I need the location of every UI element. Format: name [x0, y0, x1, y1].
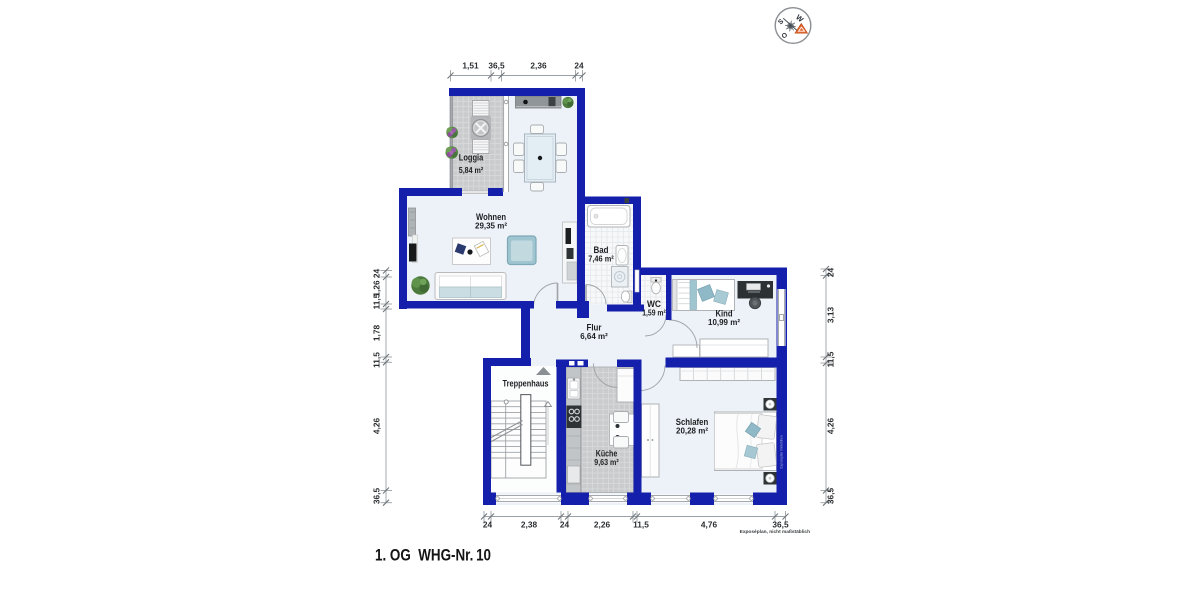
svg-text:5,84 m²: 5,84 m²	[459, 165, 484, 175]
svg-text:11,5: 11,5	[826, 351, 836, 367]
svg-text:1,51: 1,51	[462, 61, 479, 71]
svg-text:20,28 m²: 20,28 m²	[676, 426, 708, 436]
svg-text:6,64 m²: 6,64 m²	[580, 331, 608, 341]
svg-text:1,59 m²: 1,59 m²	[642, 308, 666, 318]
svg-text:10,99 m²: 10,99 m²	[708, 317, 740, 327]
svg-text:11,5: 11,5	[633, 520, 649, 530]
svg-text:29,35 m²: 29,35 m²	[475, 221, 507, 231]
svg-text:36,5: 36,5	[488, 61, 505, 71]
svg-text:4,26: 4,26	[372, 418, 382, 435]
svg-text:4,76: 4,76	[701, 520, 718, 530]
svg-text:2,36: 2,36	[530, 61, 547, 71]
svg-text:3,13: 3,13	[826, 307, 836, 324]
svg-text:Exposéplan, nicht maßstäblich: Exposéplan, nicht maßstäblich	[740, 529, 810, 535]
svg-text:1,78: 1,78	[372, 325, 382, 342]
svg-text:36,5: 36,5	[826, 488, 836, 505]
svg-text:1. OG WHG-Nr. 10: 1. OG WHG-Nr. 10	[375, 547, 491, 565]
svg-text:7,46 m²: 7,46 m²	[588, 254, 614, 264]
svg-text:24: 24	[574, 61, 584, 71]
svg-text:Loggia: Loggia	[459, 153, 484, 163]
svg-text:9,63 m²: 9,63 m²	[594, 457, 619, 467]
svg-text:36,5: 36,5	[772, 520, 789, 530]
svg-text:Treppenhaus: Treppenhaus	[503, 379, 549, 389]
svg-text:Exposeplan Immobilien: Exposeplan Immobilien	[780, 435, 784, 468]
svg-text:2,26: 2,26	[594, 520, 611, 530]
svg-text:24: 24	[372, 269, 382, 279]
svg-text:24: 24	[560, 520, 570, 530]
svg-text:11,5: 11,5	[372, 352, 382, 368]
svg-text:11,5: 11,5	[372, 293, 382, 309]
svg-text:36,5: 36,5	[372, 488, 382, 505]
svg-text:2,38: 2,38	[521, 520, 538, 530]
svg-text:4,26: 4,26	[826, 418, 836, 435]
svg-text:24: 24	[483, 520, 493, 530]
svg-text:24: 24	[826, 268, 836, 278]
